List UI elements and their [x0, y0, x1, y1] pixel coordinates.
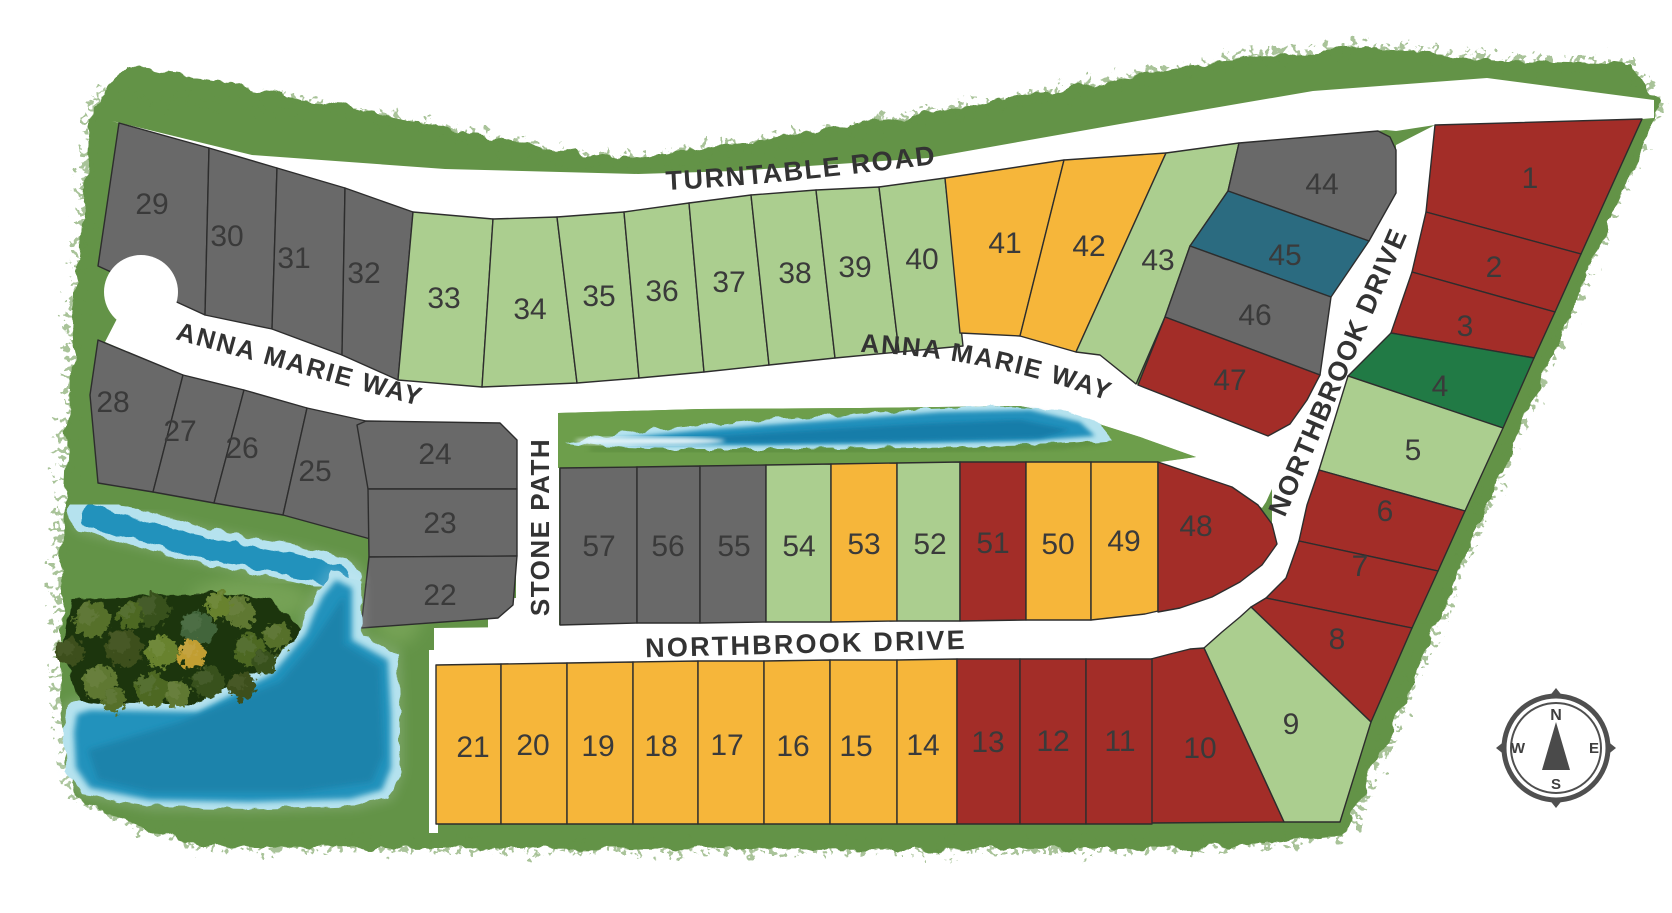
svg-text:40: 40	[905, 243, 938, 276]
svg-text:11: 11	[1104, 725, 1135, 758]
svg-text:50: 50	[1041, 528, 1074, 561]
svg-text:57: 57	[582, 530, 615, 563]
svg-text:S: S	[1551, 776, 1561, 793]
svg-text:1: 1	[1522, 162, 1539, 195]
svg-text:22: 22	[423, 579, 456, 612]
svg-text:18: 18	[644, 730, 677, 763]
svg-text:27: 27	[163, 415, 196, 448]
svg-text:4: 4	[1432, 370, 1449, 403]
svg-text:31: 31	[277, 242, 310, 275]
svg-text:10: 10	[1183, 732, 1216, 765]
svg-text:7: 7	[1352, 550, 1369, 583]
svg-text:53: 53	[847, 528, 880, 561]
svg-text:46: 46	[1238, 299, 1271, 332]
svg-text:19: 19	[581, 730, 614, 763]
svg-text:15: 15	[839, 730, 872, 763]
svg-text:9: 9	[1283, 708, 1300, 741]
svg-text:42: 42	[1072, 230, 1105, 263]
svg-text:36: 36	[645, 275, 678, 308]
svg-text:W: W	[1511, 740, 1526, 757]
svg-text:37: 37	[712, 266, 745, 299]
svg-text:N: N	[1550, 707, 1562, 724]
svg-text:STONE PATH: STONE PATH	[525, 438, 555, 616]
svg-text:47: 47	[1213, 364, 1246, 397]
svg-text:52: 52	[913, 528, 946, 561]
svg-text:55: 55	[717, 530, 750, 563]
svg-text:34: 34	[513, 293, 546, 326]
svg-text:56: 56	[651, 530, 684, 563]
svg-text:12: 12	[1036, 725, 1069, 758]
svg-text:54: 54	[782, 530, 815, 563]
svg-text:3: 3	[1457, 310, 1474, 343]
svg-text:21: 21	[456, 731, 489, 764]
svg-text:39: 39	[838, 251, 871, 284]
svg-text:51: 51	[976, 527, 1009, 560]
svg-text:E: E	[1589, 740, 1599, 757]
svg-text:29: 29	[135, 188, 168, 221]
svg-text:30: 30	[210, 220, 243, 253]
svg-text:35: 35	[582, 280, 615, 313]
svg-text:43: 43	[1141, 244, 1174, 277]
svg-text:28: 28	[96, 386, 129, 419]
svg-text:13: 13	[971, 726, 1004, 759]
svg-text:16: 16	[776, 730, 809, 763]
svg-text:33: 33	[427, 282, 460, 315]
svg-text:48: 48	[1179, 510, 1212, 543]
svg-text:44: 44	[1305, 168, 1338, 201]
svg-text:2: 2	[1486, 251, 1503, 284]
svg-text:17: 17	[710, 729, 743, 762]
svg-text:14: 14	[906, 729, 939, 762]
svg-text:45: 45	[1268, 239, 1301, 272]
svg-text:38: 38	[778, 257, 811, 290]
svg-text:32: 32	[347, 257, 380, 290]
svg-text:41: 41	[988, 227, 1021, 260]
svg-text:23: 23	[423, 507, 456, 540]
svg-text:24: 24	[418, 438, 451, 471]
svg-text:49: 49	[1107, 525, 1140, 558]
svg-text:5: 5	[1405, 434, 1422, 467]
svg-text:20: 20	[516, 729, 549, 762]
svg-text:8: 8	[1329, 623, 1346, 656]
svg-text:26: 26	[225, 432, 258, 465]
svg-text:6: 6	[1377, 495, 1394, 528]
svg-text:25: 25	[298, 455, 331, 488]
